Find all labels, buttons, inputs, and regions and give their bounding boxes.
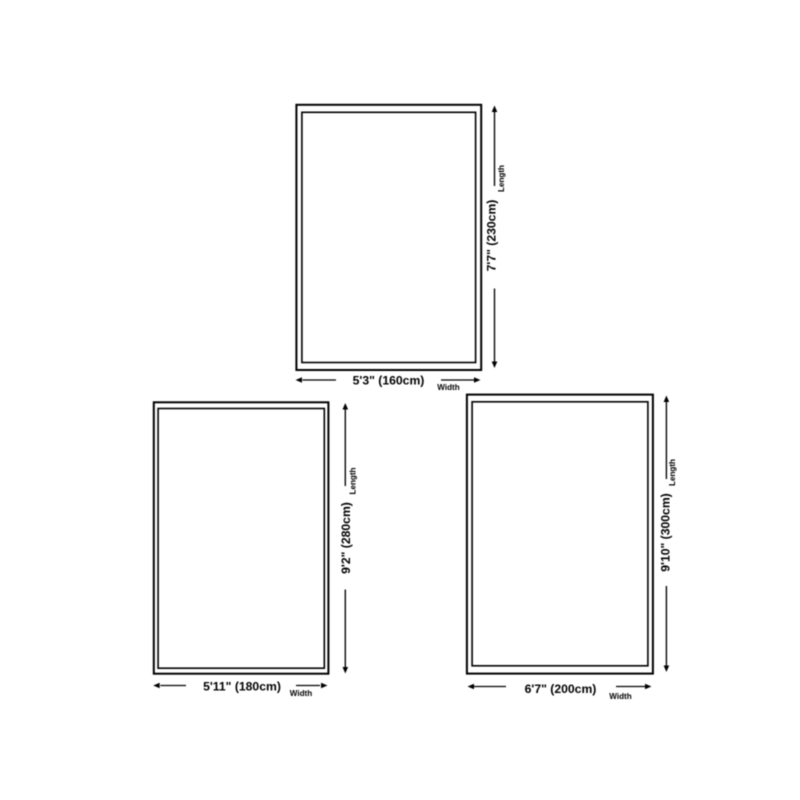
svg-text:5'3" (160cm): 5'3" (160cm)	[353, 374, 425, 388]
svg-text:9'10" (300cm): 9'10" (300cm)	[659, 493, 673, 571]
svg-text:6'7" (200cm): 6'7" (200cm)	[525, 682, 597, 696]
svg-text:Width: Width	[290, 689, 312, 698]
svg-text:Width: Width	[609, 692, 631, 701]
svg-text:Width: Width	[437, 383, 459, 392]
svg-text:5'11" (180cm): 5'11" (180cm)	[203, 680, 281, 694]
svg-text:9'2" (280cm): 9'2" (280cm)	[339, 502, 353, 574]
svg-text:7'7" (230cm): 7'7" (230cm)	[485, 200, 499, 272]
svg-text:Length: Length	[349, 467, 358, 494]
svg-text:Length: Length	[497, 165, 506, 192]
svg-text:Length: Length	[668, 459, 677, 486]
